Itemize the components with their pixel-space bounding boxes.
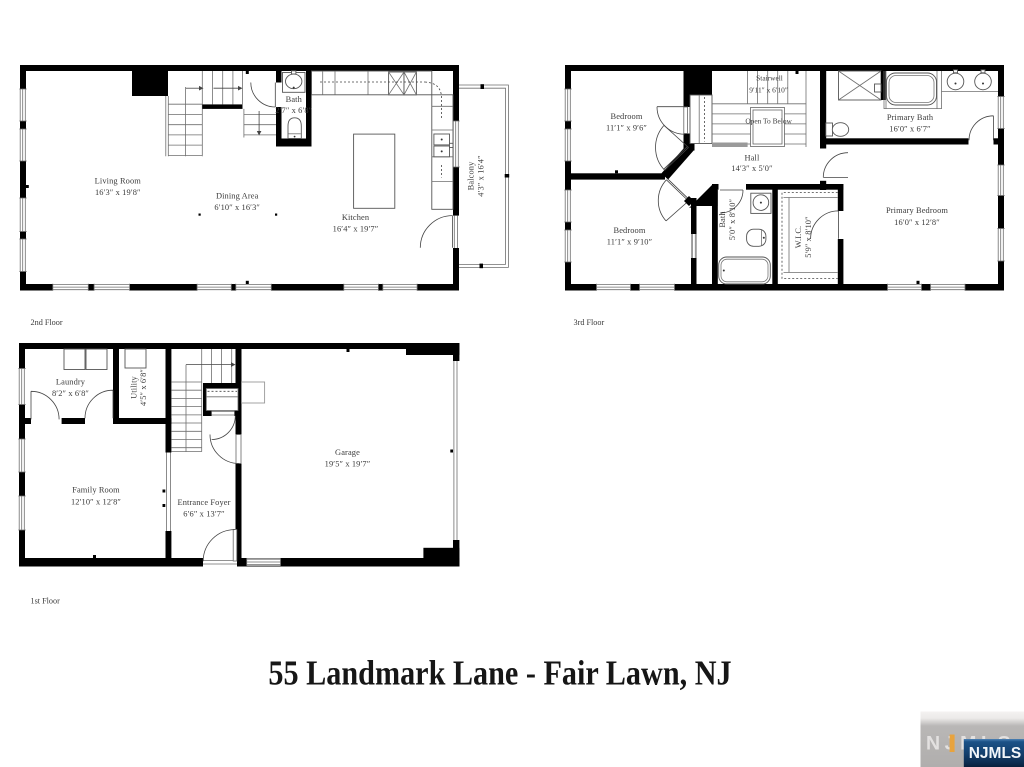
svg-text:Primary Bedroom: Primary Bedroom <box>886 206 948 215</box>
svg-text:Family Room: Family Room <box>72 486 120 495</box>
svg-text:14′3″ x 5′0″: 14′3″ x 5′0″ <box>731 164 773 173</box>
svg-text:19′5″ x 19′7″: 19′5″ x 19′7″ <box>325 459 371 468</box>
svg-text:1st Floor: 1st Floor <box>31 597 61 606</box>
svg-text:Bath: Bath <box>718 211 727 228</box>
svg-text:Entrance Foyer: Entrance Foyer <box>177 498 230 507</box>
svg-text:2′7″ x 6′8″: 2′7″ x 6′8″ <box>275 106 312 115</box>
svg-text:Garage: Garage <box>335 448 360 457</box>
svg-text:Open To Below: Open To Below <box>745 117 792 126</box>
svg-text:Dining Area: Dining Area <box>216 191 259 200</box>
svg-text:Bath: Bath <box>286 95 303 104</box>
svg-text:55 Landmark Lane - Fair Lawn,: 55 Landmark Lane - Fair Lawn, NJ <box>268 654 731 693</box>
svg-text:5′0″ x 8′10″: 5′0″ x 8′10″ <box>728 198 737 240</box>
svg-text:Primary Bath: Primary Bath <box>887 113 934 122</box>
svg-text:8′2″ x 6′8″: 8′2″ x 6′8″ <box>52 389 89 398</box>
svg-text:Balcony: Balcony <box>467 161 476 190</box>
svg-text:16′0″ x 12′8″: 16′0″ x 12′8″ <box>894 218 940 227</box>
svg-text:11′1″ x 9′6″: 11′1″ x 9′6″ <box>606 124 647 133</box>
svg-text:Living Room: Living Room <box>95 177 142 186</box>
svg-text:Hall: Hall <box>745 153 760 162</box>
svg-text:12′10″ x 12′8″: 12′10″ x 12′8″ <box>71 497 121 506</box>
svg-text:Kitchen: Kitchen <box>342 213 370 222</box>
svg-text:Bedroom: Bedroom <box>613 226 645 235</box>
svg-text:NJMLS: NJMLS <box>969 745 1022 762</box>
svg-text:Bedroom: Bedroom <box>610 112 642 121</box>
svg-text:4′5″ x 6′8″: 4′5″ x 6′8″ <box>139 369 148 406</box>
svg-text:9′11″ x 6′10″: 9′11″ x 6′10″ <box>749 85 788 94</box>
svg-text:Stairwell: Stairwell <box>756 74 783 83</box>
svg-text:6′10″ x 16′3″: 6′10″ x 16′3″ <box>214 203 260 212</box>
svg-text:W.I.C.: W.I.C. <box>794 226 803 249</box>
svg-text:2nd Floor: 2nd Floor <box>31 318 63 327</box>
svg-text:11′1″ x 9′10″: 11′1″ x 9′10″ <box>607 238 653 247</box>
svg-text:4′3″ x 16′4″: 4′3″ x 16′4″ <box>476 155 485 197</box>
svg-text:3rd Floor: 3rd Floor <box>574 318 605 327</box>
svg-text:6′6″ x 13′7″: 6′6″ x 13′7″ <box>183 510 225 519</box>
svg-text:Laundry: Laundry <box>56 378 86 387</box>
svg-text:16′4″ x 19′7″: 16′4″ x 19′7″ <box>333 224 379 233</box>
svg-text:16′3″ x 19′8″: 16′3″ x 19′8″ <box>95 188 141 197</box>
svg-text:16′0″ x 6′7″: 16′0″ x 6′7″ <box>889 125 931 134</box>
svg-text:5′9″ x 8′10″: 5′9″ x 8′10″ <box>804 216 813 258</box>
svg-text:Utility: Utility <box>130 375 139 398</box>
